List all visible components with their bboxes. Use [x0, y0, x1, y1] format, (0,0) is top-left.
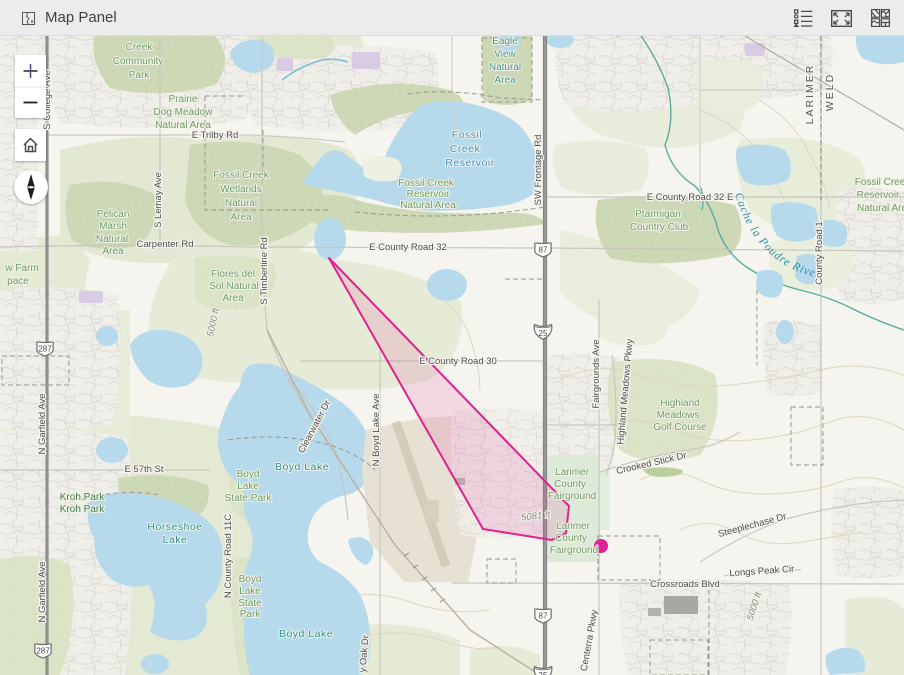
- svg-text:287: 287: [38, 345, 52, 354]
- svg-text:N Garfield Ave: N Garfield Ave: [37, 561, 48, 622]
- svg-text:Fairground: Fairground: [548, 491, 596, 502]
- svg-text:Kroh Park: Kroh Park: [60, 504, 105, 515]
- svg-text:Carpenter Rd: Carpenter Rd: [136, 239, 193, 250]
- svg-text:Natural: Natural: [225, 198, 257, 209]
- svg-text:N Garfield Ave: N Garfield Ave: [37, 393, 48, 454]
- svg-text:Community: Community: [113, 56, 164, 67]
- svg-text:E County Road 32 E: E County Road 32 E: [647, 192, 734, 203]
- svg-text:Natural: Natural: [489, 62, 521, 73]
- svg-text:Boyd Lake: Boyd Lake: [279, 628, 333, 640]
- svg-text:View: View: [494, 49, 516, 60]
- svg-text:287: 287: [36, 647, 50, 656]
- svg-text:Larimer: Larimer: [555, 467, 590, 478]
- svg-text:Kroh Park: Kroh Park: [60, 492, 105, 503]
- svg-text:Area: Area: [494, 75, 516, 86]
- svg-text:S Lemay Ave: S Lemay Ave: [153, 172, 164, 228]
- svg-text:Area: Area: [230, 212, 252, 223]
- svg-text:Fossil Cree: Fossil Cree: [855, 177, 904, 188]
- svg-text:N Boyd Lake Ave: N Boyd Lake Ave: [371, 394, 382, 467]
- svg-text:Pelican: Pelican: [97, 209, 130, 220]
- svg-text:Highland: Highland: [660, 398, 699, 409]
- svg-text:Area: Area: [102, 246, 124, 257]
- svg-text:State Park: State Park: [225, 493, 273, 504]
- svg-text:Fossil Creek: Fossil Creek: [213, 170, 270, 181]
- svg-text:WELD: WELD: [824, 73, 836, 111]
- svg-text:Natural Are: Natural Are: [857, 203, 904, 214]
- svg-text:Ptarmigan: Ptarmigan: [635, 209, 681, 220]
- svg-text:N County Road 11C: N County Road 11C: [223, 514, 234, 598]
- svg-text:Crossroads Blvd: Crossroads Blvd: [650, 579, 720, 590]
- svg-text:E 57th St: E 57th St: [124, 464, 163, 475]
- svg-text:pace: pace: [7, 276, 29, 287]
- svg-text:Sol Natural: Sol Natural: [209, 281, 258, 292]
- svg-text:E County Road 30: E County Road 30: [419, 356, 497, 367]
- svg-text:County: County: [554, 479, 586, 490]
- svg-text:Country Club: Country Club: [630, 222, 689, 233]
- svg-text:E County Road 32: E County Road 32: [369, 242, 447, 253]
- svg-text:Golf Course: Golf Course: [653, 422, 707, 433]
- svg-text:w Farm: w Farm: [4, 263, 38, 274]
- svg-text:Eagle: Eagle: [492, 36, 518, 47]
- svg-text:Area: Area: [222, 293, 244, 304]
- svg-text:LARIMER: LARIMER: [804, 64, 816, 125]
- svg-text:87: 87: [539, 246, 548, 255]
- svg-text:87: 87: [539, 612, 548, 621]
- svg-text:Lake: Lake: [237, 481, 259, 492]
- svg-text:County: County: [555, 533, 587, 544]
- svg-text:Flores del: Flores del: [211, 269, 255, 280]
- svg-text:Boyd: Boyd: [239, 574, 262, 585]
- svg-text:County Road 1: County Road 1: [814, 221, 825, 284]
- svg-text:25: 25: [539, 671, 548, 675]
- svg-text:Reservoir: Reservoir: [445, 157, 494, 169]
- svg-text:Horseshoe: Horseshoe: [147, 521, 202, 533]
- svg-text:Fossil Creek: Fossil Creek: [398, 178, 455, 189]
- svg-text:Natural Area: Natural Area: [400, 200, 456, 211]
- svg-text:Park: Park: [240, 609, 262, 620]
- svg-text:Park: Park: [129, 70, 151, 81]
- svg-text:Lake: Lake: [239, 586, 261, 597]
- svg-text:Wetlands: Wetlands: [220, 184, 262, 195]
- svg-text:Boyd Lake: Boyd Lake: [275, 461, 329, 473]
- svg-text:Reservoir: Reservoir: [407, 189, 450, 200]
- svg-text:Fairgrounds Ave: Fairgrounds Ave: [591, 339, 602, 408]
- svg-text:Fossil: Fossil: [452, 129, 482, 141]
- svg-text:Prairie: Prairie: [169, 94, 198, 105]
- svg-text:25: 25: [539, 329, 548, 338]
- svg-text:Dog Meadow: Dog Meadow: [154, 107, 214, 118]
- svg-text:Larimer: Larimer: [556, 521, 591, 532]
- svg-text:Natural: Natural: [96, 234, 128, 245]
- svg-text:Meadows: Meadows: [657, 410, 700, 421]
- svg-text:Boyd: Boyd: [237, 469, 260, 480]
- svg-text:Reservoir: Reservoir: [857, 190, 900, 201]
- svg-text:State: State: [238, 598, 262, 609]
- svg-text:Lake: Lake: [163, 534, 188, 546]
- svg-text:S Timberline Rd: S Timberline Rd: [259, 237, 270, 305]
- svg-text:Marsh: Marsh: [99, 221, 127, 232]
- svg-text:Creek: Creek: [126, 42, 154, 53]
- svg-text:E Trilby Rd: E Trilby Rd: [192, 130, 238, 141]
- svg-text:Fairground: Fairground: [550, 545, 598, 556]
- svg-text:Creek: Creek: [450, 143, 481, 155]
- svg-text:SW Frontage Rd: SW Frontage Rd: [533, 135, 544, 206]
